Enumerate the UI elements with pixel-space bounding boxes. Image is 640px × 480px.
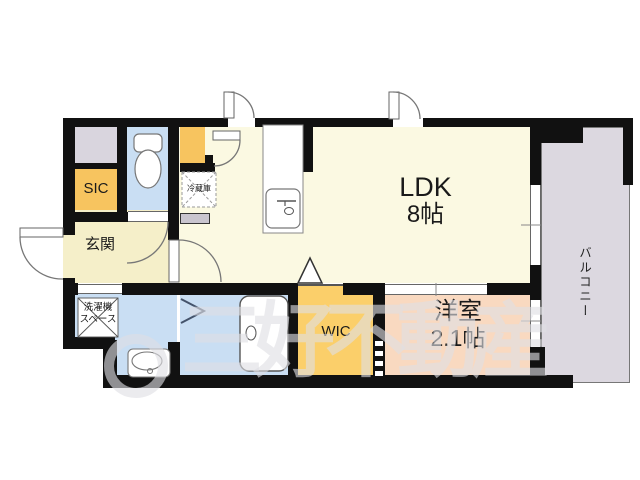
- ldk-western-sliding-door: [385, 284, 487, 295]
- ldk-balcony-window: [530, 185, 541, 265]
- sic-label: SIC: [75, 181, 117, 198]
- wall: [303, 118, 313, 172]
- laundry-line2: スペース: [76, 314, 120, 326]
- wall: [530, 118, 583, 143]
- ldk-label: LDK 8帖: [363, 172, 488, 229]
- refrigerator-label: 冷蔵庫: [182, 185, 216, 194]
- balcony-label: バルコニー: [577, 212, 591, 352]
- wall: [530, 265, 541, 300]
- ldk-label-size: 8帖: [363, 202, 488, 229]
- laundry-space-label: 洗濯機 スペース: [76, 302, 120, 327]
- wall-opening-line: [298, 284, 343, 286]
- wall: [205, 155, 213, 172]
- washroom-sliding-door: [78, 284, 122, 294]
- storage-cell: [180, 127, 205, 165]
- wall: [75, 212, 128, 222]
- wall: [168, 283, 298, 295]
- wall: [117, 127, 127, 222]
- wall: [63, 118, 75, 235]
- wall: [623, 118, 633, 185]
- wall: [255, 118, 393, 127]
- exterior-door-leaf: [389, 92, 399, 119]
- exterior-door-arc: [228, 92, 254, 118]
- laundry-line1: 洗濯機: [76, 302, 120, 314]
- wall: [168, 127, 179, 240]
- watermark-text: 三好不動産: [181, 301, 541, 383]
- wall: [63, 283, 78, 295]
- ldk-label-name: LDK: [363, 172, 488, 202]
- gray-closet-area: [75, 127, 117, 163]
- toilet-doorway: [128, 211, 168, 222]
- entrance-door-arc: [20, 237, 63, 279]
- floor-plan: LDK 8帖 洋室 2.1帖 WIC SIC 玄関 洗濯機 スペース 冷蔵庫 バ…: [0, 0, 640, 480]
- wall: [487, 283, 532, 295]
- counter-shelf: [180, 213, 210, 224]
- toilet-room-floor: [127, 127, 170, 212]
- wall: [122, 283, 168, 295]
- exterior-door-arc: [393, 92, 420, 119]
- exterior-door-leaf: [224, 92, 234, 118]
- wall: [530, 143, 541, 185]
- wall: [423, 118, 633, 127]
- watermark-logo: [104, 334, 168, 398]
- entrance-label: 玄関: [70, 237, 130, 254]
- wall: [63, 118, 228, 127]
- entrance-door-leaf: [20, 228, 63, 237]
- wall: [168, 342, 180, 380]
- wall: [75, 163, 117, 169]
